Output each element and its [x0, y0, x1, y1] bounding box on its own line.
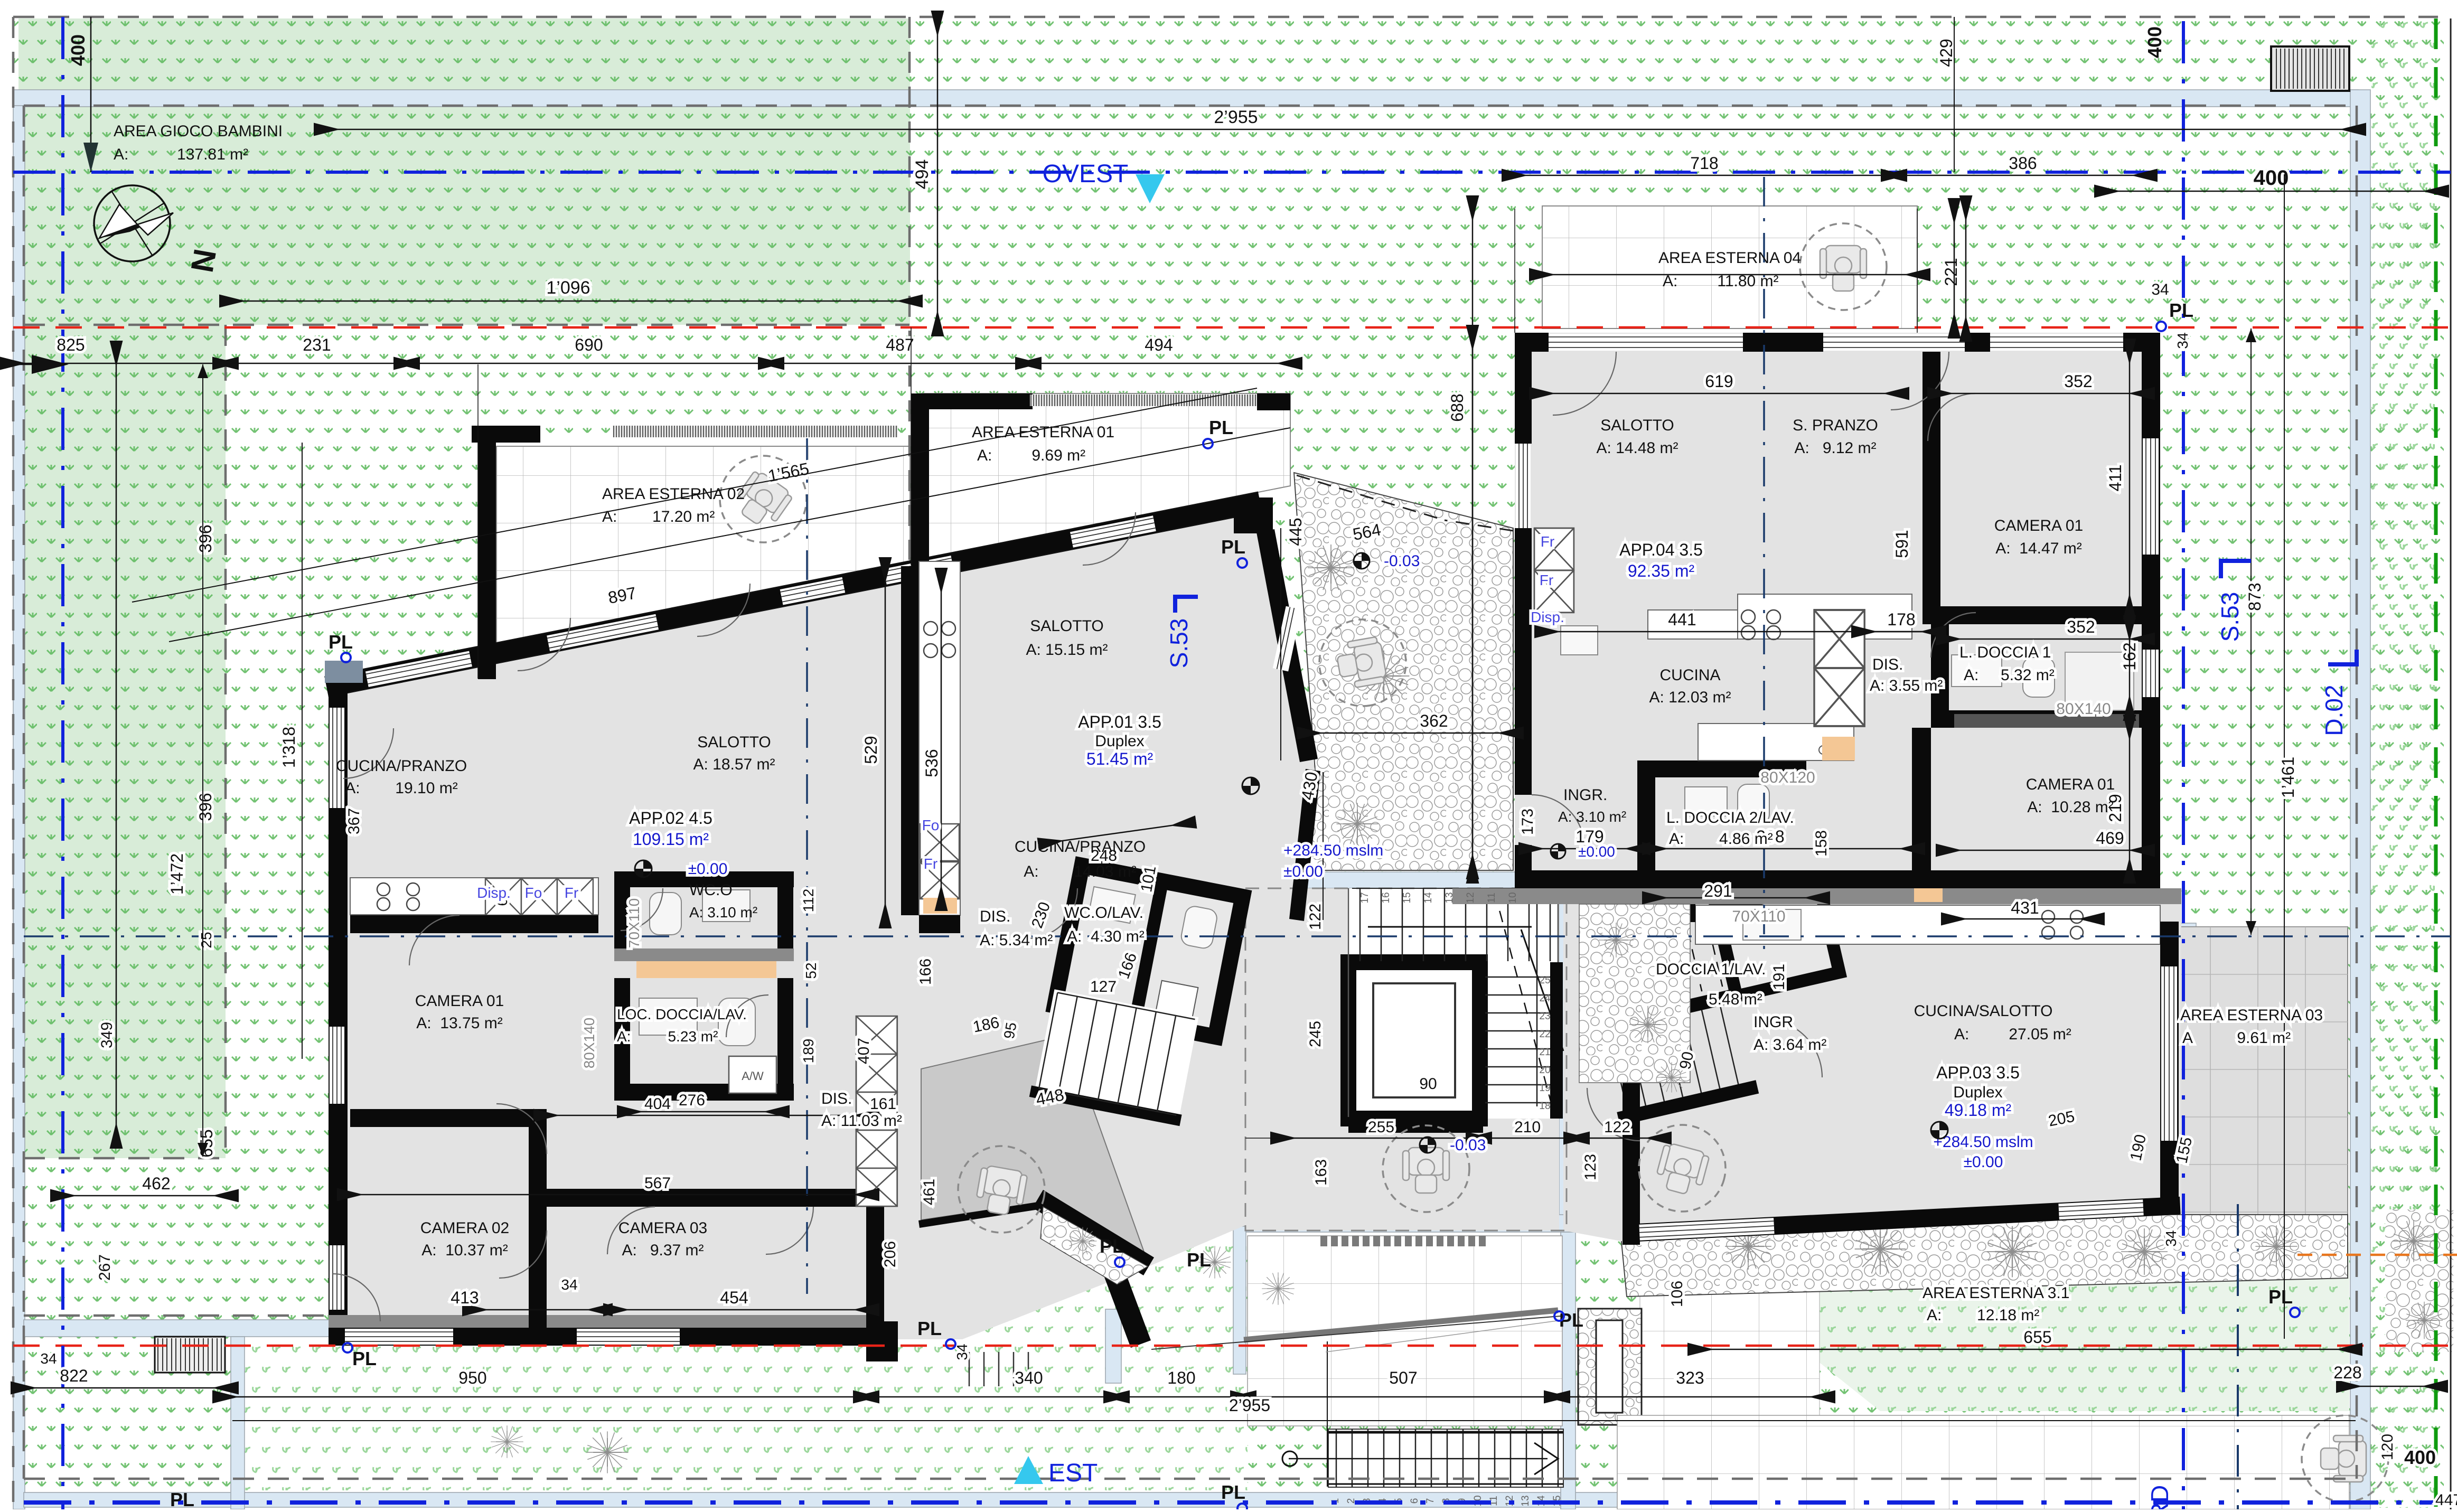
svg-text:A: 3.10 m²: A: 3.10 m² — [1558, 809, 1626, 825]
svg-text:Fr: Fr — [924, 856, 937, 872]
svg-text:90: 90 — [1676, 1050, 1697, 1071]
svg-text:INGR: INGR — [1753, 1013, 1793, 1031]
svg-text:AREA ESTERNA 03: AREA ESTERNA 03 — [2180, 1007, 2323, 1024]
svg-text:S.53: S.53 — [1165, 618, 1193, 669]
svg-text:A: 10.37 m²: A: 10.37 m² — [421, 1242, 508, 1259]
svg-text:1’096: 1’096 — [546, 278, 590, 298]
svg-text:178: 178 — [1887, 610, 1915, 629]
svg-text:DIS.: DIS. — [821, 1090, 852, 1107]
svg-text:619: 619 — [1705, 372, 1733, 391]
svg-text:A: 19.10 m²: A: 19.10 m² — [345, 780, 457, 797]
svg-text:A: 27.05 m²: A: 27.05 m² — [1954, 1026, 2071, 1043]
svg-text:A: 3.10 m²: A: 3.10 m² — [689, 904, 757, 921]
svg-text:CUCINA: CUCINA — [1659, 666, 1720, 684]
svg-text:34: 34 — [2151, 281, 2169, 298]
svg-text:25: 25 — [198, 932, 214, 948]
svg-text:122: 122 — [1307, 904, 1324, 930]
svg-text:655: 655 — [2023, 1328, 2051, 1347]
svg-text:323: 323 — [1676, 1368, 1704, 1387]
svg-text:22: 22 — [1539, 1029, 1550, 1040]
svg-text:A: 5.23 m²: A: 5.23 m² — [617, 1028, 718, 1045]
svg-text:SALOTTO: SALOTTO — [1600, 417, 1674, 434]
svg-text:12: 12 — [1465, 892, 1476, 903]
svg-text:454: 454 — [720, 1288, 748, 1307]
svg-text:445: 445 — [1286, 518, 1305, 546]
svg-text:161: 161 — [870, 1095, 896, 1113]
svg-text:A: 9.12 m²: A: 9.12 m² — [1794, 439, 1876, 457]
svg-text:CAMERA 01: CAMERA 01 — [2026, 776, 2115, 793]
svg-text:6: 6 — [1409, 1498, 1420, 1504]
svg-text:166: 166 — [917, 959, 934, 985]
svg-text:±0.00: ±0.00 — [688, 860, 728, 878]
svg-text:RD: RD — [2146, 1485, 2173, 1509]
svg-text:431: 431 — [2011, 898, 2039, 917]
svg-text:A: 9.69 m²: A: 9.69 m² — [977, 447, 1085, 464]
svg-text:A: 14.47 m²: A: 14.47 m² — [1995, 540, 2081, 557]
svg-text:Fr: Fr — [1541, 533, 1554, 550]
svg-text:A: 3.64 m²: A: 3.64 m² — [1753, 1036, 1826, 1054]
svg-text:A: 15.15 m²: A: 15.15 m² — [1026, 641, 1108, 659]
svg-text:507: 507 — [1389, 1368, 1417, 1387]
svg-text:OVEST: OVEST — [1043, 160, 1129, 188]
svg-text:A: 11.80 m²: A: 11.80 m² — [1663, 273, 1779, 290]
svg-text:A: 11.03 m²: A: 11.03 m² — [821, 1112, 902, 1130]
svg-text:447: 447 — [2435, 1491, 2457, 1509]
svg-text:APP.04 3.5: APP.04 3.5 — [1619, 540, 1703, 559]
svg-text:362: 362 — [1420, 711, 1448, 730]
svg-text:15: 15 — [1402, 892, 1413, 903]
svg-text:CUCINA/SALOTTO: CUCINA/SALOTTO — [1914, 1002, 2053, 1020]
svg-text:PL: PL — [352, 1348, 377, 1369]
svg-text:822: 822 — [60, 1366, 88, 1385]
svg-text:718: 718 — [1690, 154, 1718, 173]
svg-text:400: 400 — [2254, 166, 2289, 190]
svg-text:210: 210 — [1514, 1119, 1541, 1136]
svg-text:276: 276 — [679, 1092, 705, 1109]
svg-text:WC.O/LAV.: WC.O/LAV. — [1064, 904, 1143, 922]
svg-text:AREA ESTERNA 02: AREA ESTERNA 02 — [602, 485, 745, 503]
svg-text:690: 690 — [575, 335, 603, 354]
svg-text:396: 396 — [196, 793, 215, 821]
svg-text:SALOTTO: SALOTTO — [1030, 617, 1103, 635]
svg-text:7: 7 — [1425, 1498, 1436, 1504]
svg-text:413: 413 — [451, 1288, 479, 1307]
svg-text:16: 16 — [1381, 892, 1392, 903]
svg-text:404: 404 — [644, 1095, 671, 1113]
svg-text:Duplex: Duplex — [1953, 1084, 2002, 1101]
svg-text:400: 400 — [2404, 1447, 2436, 1468]
svg-text:A: 14.03 m²: A: 14.03 m² — [1024, 863, 1136, 880]
svg-text:Fr: Fr — [1540, 572, 1553, 588]
svg-text:18: 18 — [1539, 1101, 1550, 1112]
svg-text:PL: PL — [1209, 417, 1233, 438]
svg-text:13: 13 — [1520, 1495, 1531, 1506]
svg-text:469: 469 — [2096, 829, 2124, 848]
svg-text:PL: PL — [1221, 1481, 1245, 1503]
svg-text:23: 23 — [1539, 1011, 1550, 1022]
svg-text:A/W: A/W — [742, 1069, 764, 1083]
svg-text:231: 231 — [303, 335, 331, 354]
svg-text:S. PRANZO: S. PRANZO — [1793, 417, 1878, 434]
svg-text:CUCINA/PRANZO: CUCINA/PRANZO — [1015, 838, 1146, 856]
svg-text:D.02: D.02 — [2320, 684, 2348, 736]
svg-text:A: 4.86 m²: A: 4.86 m² — [1669, 830, 1773, 848]
svg-text:14: 14 — [1423, 892, 1434, 904]
svg-text:221: 221 — [1942, 258, 1961, 286]
svg-text:5.48 m²: 5.48 m² — [1709, 991, 1762, 1008]
svg-text:AREA ESTERNA 04: AREA ESTERNA 04 — [1658, 249, 1801, 267]
svg-text:34: 34 — [2163, 1230, 2179, 1246]
svg-text:PL: PL — [2268, 1286, 2293, 1308]
svg-text:34: 34 — [561, 1276, 577, 1293]
svg-text:EST: EST — [1048, 1459, 1098, 1487]
svg-text:34: 34 — [954, 1344, 970, 1360]
svg-text:122: 122 — [1604, 1119, 1630, 1136]
svg-text:DIS.: DIS. — [980, 908, 1010, 925]
svg-text:A: 18.57 m²: A: 18.57 m² — [693, 756, 775, 773]
svg-text:206: 206 — [881, 1241, 899, 1267]
svg-text:112: 112 — [800, 889, 817, 913]
svg-text:APP.03 3.5: APP.03 3.5 — [1936, 1063, 2020, 1082]
svg-text:Fo: Fo — [922, 817, 940, 833]
svg-text:LOC. DOCCIA/LAV.: LOC. DOCCIA/LAV. — [617, 1006, 747, 1022]
svg-text:Duplex: Duplex — [1095, 732, 1144, 750]
svg-text:461: 461 — [921, 1179, 938, 1205]
svg-text:PL: PL — [329, 631, 353, 653]
svg-text:APP.02 4.5: APP.02 4.5 — [629, 809, 712, 828]
svg-text:A: 10.28 m²: A: 10.28 m² — [2027, 799, 2113, 816]
svg-text:Disp.: Disp. — [477, 885, 511, 901]
svg-text:PL: PL — [1100, 1235, 1124, 1257]
svg-text:400: 400 — [2144, 26, 2165, 58]
svg-text:494: 494 — [912, 159, 932, 190]
svg-text:A: 5.32 m²: A: 5.32 m² — [1964, 666, 2055, 684]
svg-text:127: 127 — [1090, 978, 1117, 996]
svg-text:20: 20 — [1539, 1065, 1550, 1076]
svg-text:PL: PL — [917, 1318, 942, 1339]
svg-text:DOCCIA 1/LAV.: DOCCIA 1/LAV. — [1656, 961, 1766, 978]
svg-text:21: 21 — [1539, 1047, 1550, 1058]
svg-text:10: 10 — [1507, 892, 1518, 903]
svg-text:487: 487 — [886, 335, 914, 354]
svg-text:92.35 m²: 92.35 m² — [1628, 561, 1695, 580]
svg-text:19: 19 — [1539, 1083, 1550, 1094]
svg-text:429: 429 — [1937, 39, 1956, 67]
svg-text:80X140: 80X140 — [581, 1018, 597, 1069]
svg-text:-0.03: -0.03 — [1450, 1137, 1486, 1154]
svg-text:L. DOCCIA 1: L. DOCCIA 1 — [1959, 644, 2051, 661]
svg-text:70X110: 70X110 — [626, 898, 642, 948]
svg-text:CUCINA/PRANZO: CUCINA/PRANZO — [336, 757, 467, 775]
svg-text:SALOTTO: SALOTTO — [697, 734, 771, 751]
svg-text:PL: PL — [170, 1489, 194, 1509]
svg-text:A: 12.18 m²: A: 12.18 m² — [1927, 1307, 2039, 1324]
svg-text:407: 407 — [855, 1038, 873, 1064]
svg-text:191: 191 — [1770, 964, 1788, 990]
svg-text:120: 120 — [2379, 1434, 2396, 1460]
svg-text:70X110: 70X110 — [1732, 908, 1785, 925]
svg-text:591: 591 — [1892, 530, 1911, 558]
svg-text:494: 494 — [1145, 335, 1173, 354]
svg-text:A: 137.81 m²: A: 137.81 m² — [114, 146, 248, 163]
svg-text:A: 12.03 m²: A: 12.03 m² — [1649, 689, 1731, 706]
svg-text:+284.50 mslm: +284.50 mslm — [1283, 842, 1383, 859]
svg-text:90: 90 — [1419, 1075, 1437, 1093]
svg-text:411: 411 — [2106, 464, 2125, 491]
svg-text:158: 158 — [1813, 830, 1830, 857]
svg-text:123: 123 — [1582, 1154, 1599, 1180]
svg-text:291: 291 — [1704, 881, 1732, 900]
svg-text:A: 14.48 m²: A: 14.48 m² — [1596, 439, 1678, 457]
svg-text:34: 34 — [2174, 332, 2191, 349]
svg-text:PL: PL — [2169, 299, 2193, 321]
svg-text:+284.50 mslm: +284.50 mslm — [1933, 1133, 2033, 1151]
svg-text:352: 352 — [2067, 617, 2095, 636]
svg-text:349: 349 — [98, 1022, 116, 1048]
svg-text:17: 17 — [1359, 892, 1371, 903]
svg-text:396: 396 — [196, 524, 215, 552]
svg-text:PL: PL — [1187, 1249, 1211, 1271]
svg-text:CAMERA 02: CAMERA 02 — [420, 1219, 509, 1237]
svg-text:INGR.: INGR. — [1563, 786, 1607, 804]
svg-text:-0.03: -0.03 — [1384, 552, 1420, 570]
svg-text:WC.O: WC.O — [689, 881, 733, 899]
svg-text:Disp.: Disp. — [1531, 609, 1564, 625]
svg-text:80X120: 80X120 — [1760, 769, 1815, 786]
svg-text:A 9.61 m²: A 9.61 m² — [2182, 1029, 2291, 1047]
svg-text:688: 688 — [1448, 393, 1467, 421]
svg-text:2’955: 2’955 — [1229, 1396, 1270, 1415]
svg-text:A: 17.20 m²: A: 17.20 m² — [602, 508, 715, 525]
svg-text:24: 24 — [1539, 993, 1551, 1004]
svg-text:CAMERA 01: CAMERA 01 — [415, 992, 504, 1010]
svg-text:±0.00: ±0.00 — [1964, 1153, 2003, 1171]
svg-text:Fo: Fo — [525, 885, 542, 901]
svg-text:400: 400 — [67, 34, 89, 66]
svg-text:95: 95 — [1001, 1021, 1020, 1040]
svg-text:AREA GIOCO BAMBINI: AREA GIOCO BAMBINI — [114, 123, 283, 140]
svg-text:1’472: 1’472 — [167, 853, 186, 895]
svg-text:1’318: 1’318 — [279, 727, 298, 768]
svg-text:CAMERA 03: CAMERA 03 — [618, 1219, 707, 1237]
svg-text:A: 13.75 m²: A: 13.75 m² — [416, 1015, 502, 1032]
svg-text:L. DOCCIA 2/LAV.: L. DOCCIA 2/LAV. — [1666, 809, 1794, 827]
svg-text:567: 567 — [644, 1175, 671, 1192]
svg-text:950: 950 — [458, 1368, 486, 1387]
svg-text:34: 34 — [40, 1350, 57, 1367]
svg-text:462: 462 — [142, 1174, 170, 1193]
svg-text:529: 529 — [861, 736, 880, 764]
svg-text:49.18 m²: 49.18 m² — [1945, 1101, 2012, 1120]
svg-text:DIS.: DIS. — [1872, 656, 1903, 673]
svg-text:±0.00: ±0.00 — [1578, 843, 1615, 860]
svg-text:±0.00: ±0.00 — [1283, 863, 1323, 880]
svg-text:228: 228 — [2333, 1363, 2361, 1382]
svg-text:1’461: 1’461 — [2278, 757, 2297, 798]
svg-text:25: 25 — [1539, 975, 1550, 986]
svg-text:A: 4.30 m²: A: 4.30 m² — [1067, 928, 1145, 945]
svg-text:AREA ESTERNA 01: AREA ESTERNA 01 — [972, 424, 1114, 441]
svg-text:873: 873 — [2245, 583, 2264, 611]
svg-text:173: 173 — [1519, 809, 1536, 835]
svg-text:163: 163 — [1312, 1159, 1330, 1186]
svg-text:51.45 m²: 51.45 m² — [1086, 749, 1154, 768]
svg-text:386: 386 — [2009, 154, 2037, 173]
svg-text:A: 9.37 m²: A: 9.37 m² — [622, 1242, 704, 1259]
svg-text:AREA ESTERNA 3.1: AREA ESTERNA 3.1 — [1923, 1284, 2069, 1302]
svg-text:PL: PL — [1221, 536, 1245, 558]
svg-text:CAMERA 01: CAMERA 01 — [1994, 517, 2083, 534]
svg-text:536: 536 — [922, 749, 941, 777]
svg-text:11: 11 — [1486, 893, 1497, 903]
svg-text:189: 189 — [800, 1039, 817, 1064]
svg-text:A: 3.55 m²: A: 3.55 m² — [1870, 677, 1943, 694]
svg-text:106: 106 — [1668, 1281, 1686, 1307]
svg-text:80X140: 80X140 — [2056, 700, 2111, 718]
svg-text:13: 13 — [1444, 892, 1455, 903]
svg-text:109.15 m²: 109.15 m² — [633, 830, 709, 849]
svg-text:2’955: 2’955 — [1214, 107, 1258, 127]
svg-text:352: 352 — [2064, 372, 2092, 391]
svg-text:52: 52 — [803, 962, 819, 979]
svg-text:S.53: S.53 — [2216, 592, 2244, 642]
svg-text:255: 255 — [1368, 1119, 1394, 1136]
svg-text:367: 367 — [345, 808, 363, 834]
svg-text:441: 441 — [1668, 610, 1696, 629]
svg-text:A: 5.34 m²: A: 5.34 m² — [980, 932, 1053, 949]
svg-text:340: 340 — [1015, 1368, 1043, 1387]
svg-text:180: 180 — [1167, 1368, 1195, 1387]
svg-text:267: 267 — [96, 1254, 114, 1281]
svg-text:825: 825 — [57, 335, 85, 354]
svg-text:Fr: Fr — [565, 885, 578, 901]
svg-text:245: 245 — [1307, 1021, 1324, 1047]
svg-text:APP.01 3.5: APP.01 3.5 — [1078, 712, 1161, 731]
